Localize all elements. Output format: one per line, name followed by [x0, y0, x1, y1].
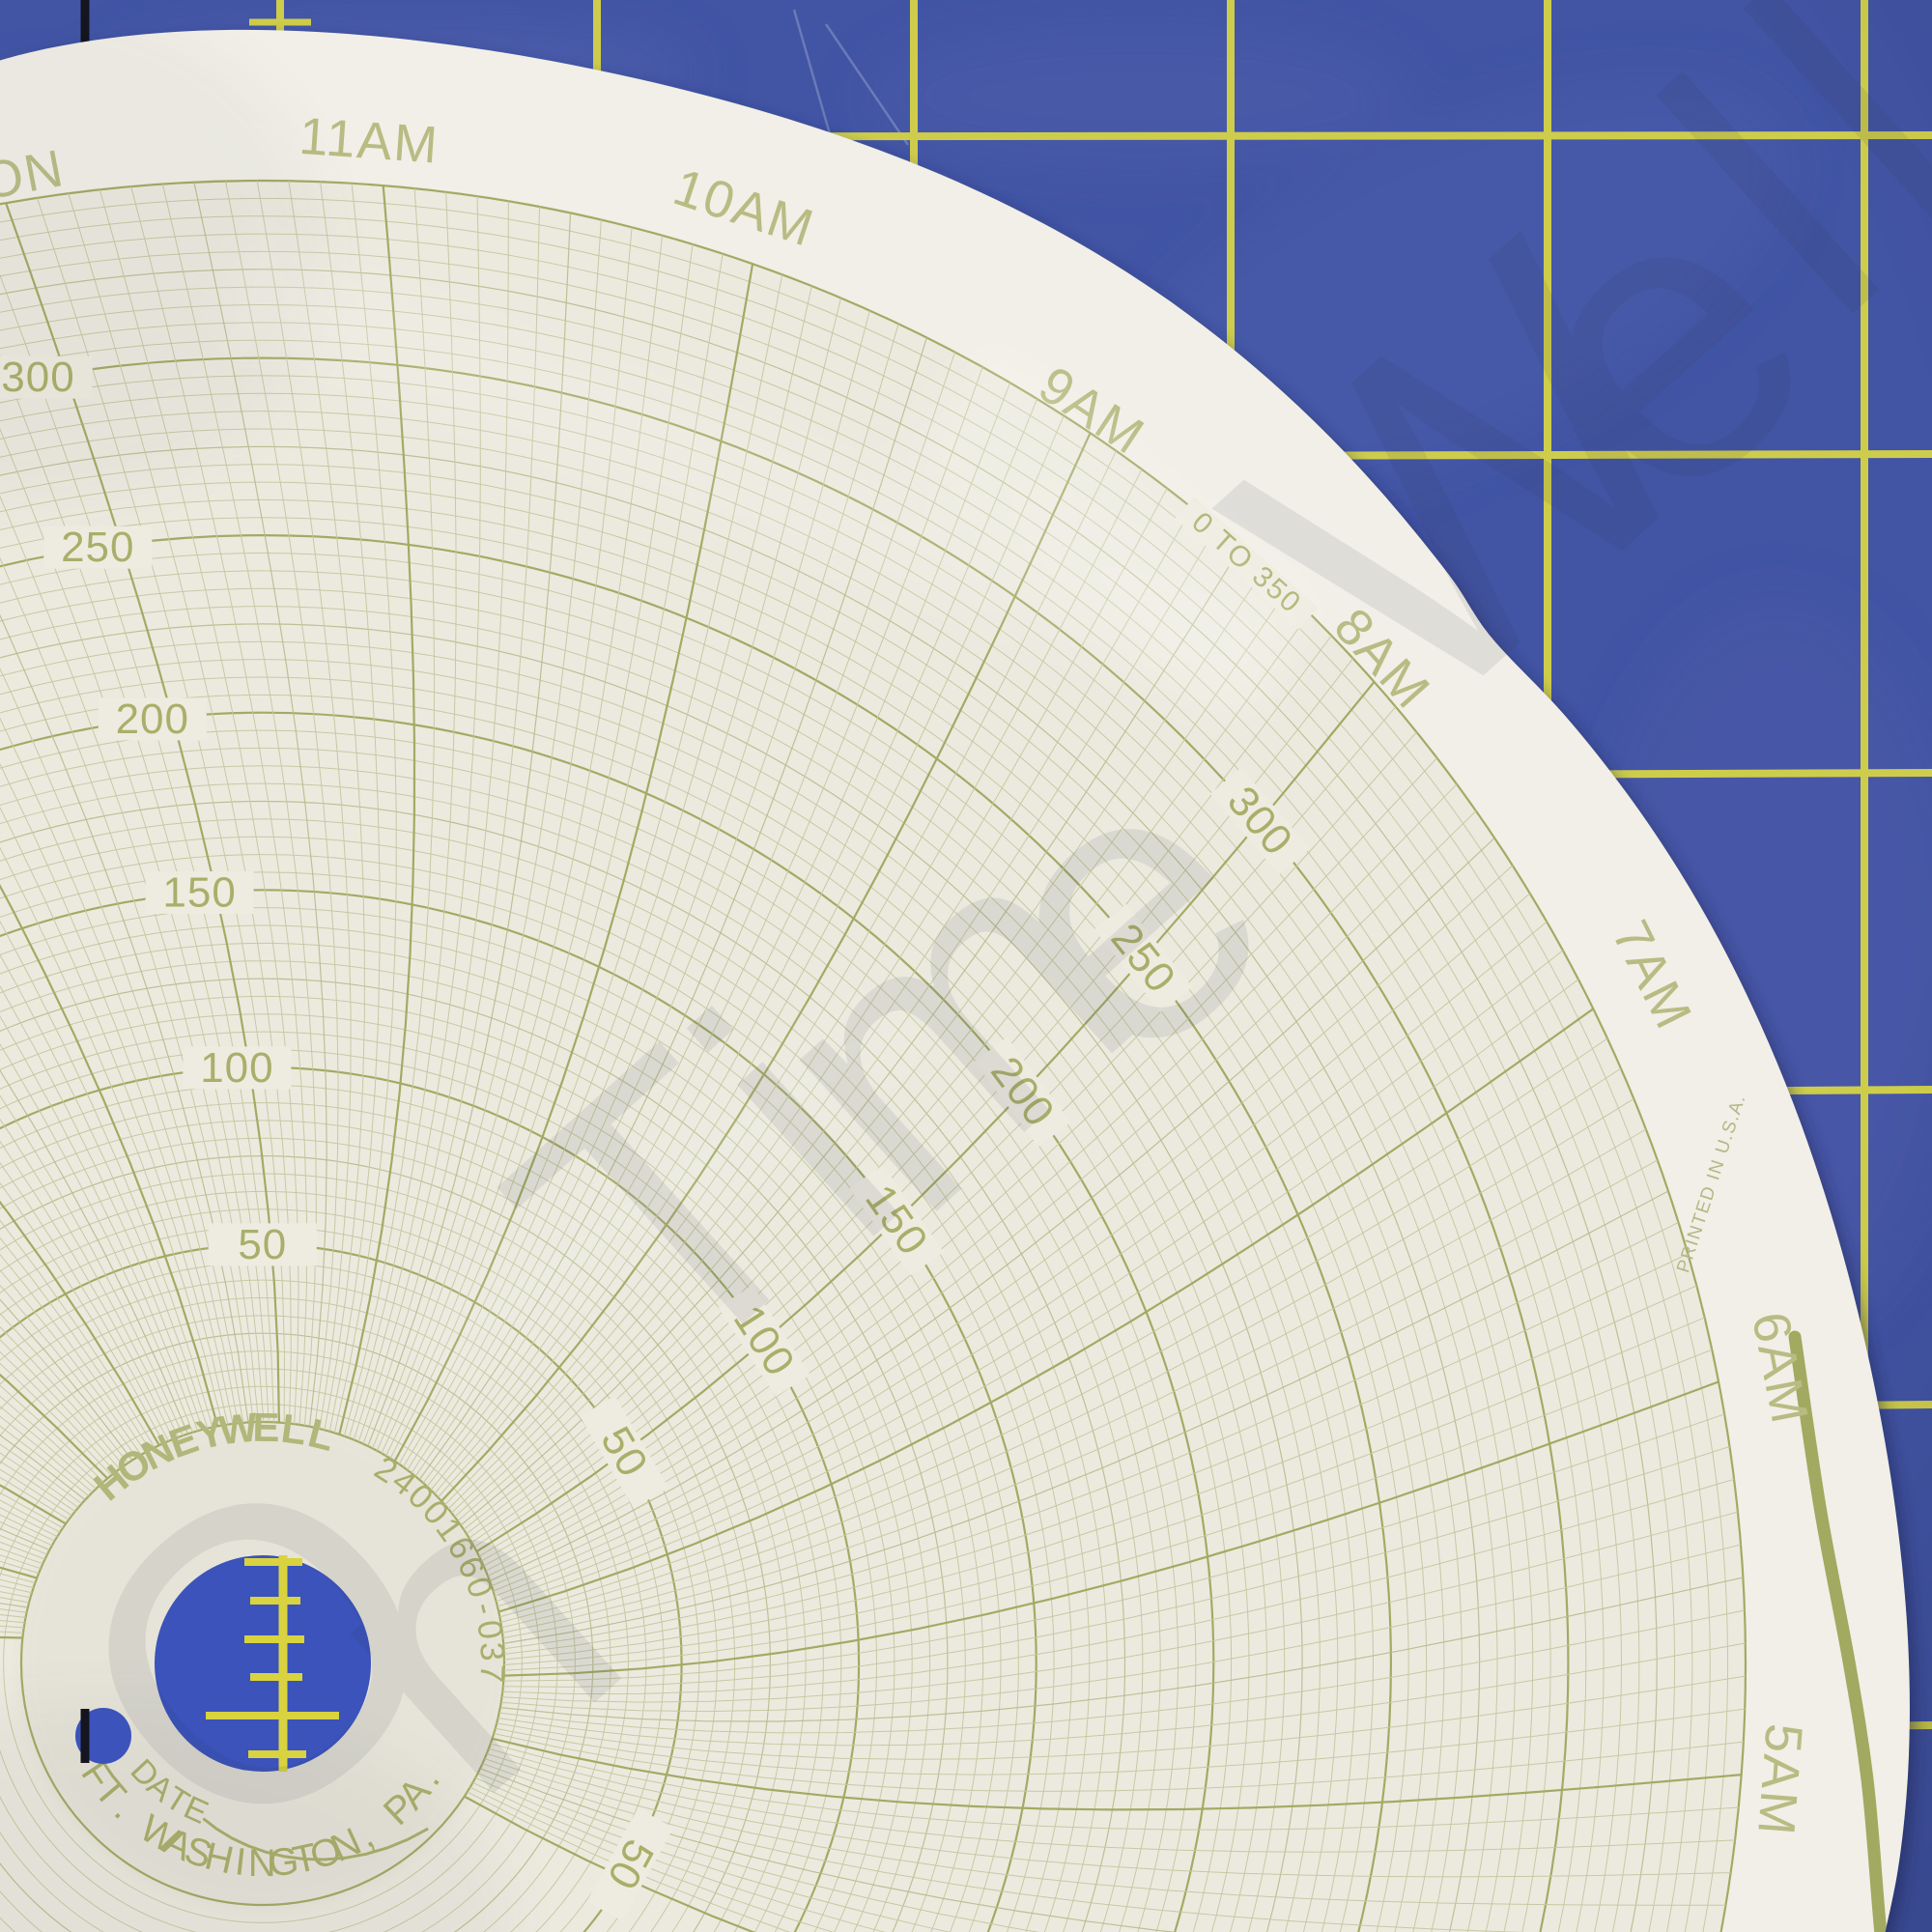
svg-text:250: 250: [61, 524, 134, 571]
svg-text:50: 50: [238, 1221, 287, 1268]
svg-text:5AM: 5AM: [1747, 1721, 1813, 1838]
svg-text:150: 150: [162, 869, 236, 917]
svg-text:11AM: 11AM: [298, 107, 441, 175]
svg-text:100: 100: [200, 1044, 273, 1092]
svg-text:200: 200: [116, 696, 189, 743]
